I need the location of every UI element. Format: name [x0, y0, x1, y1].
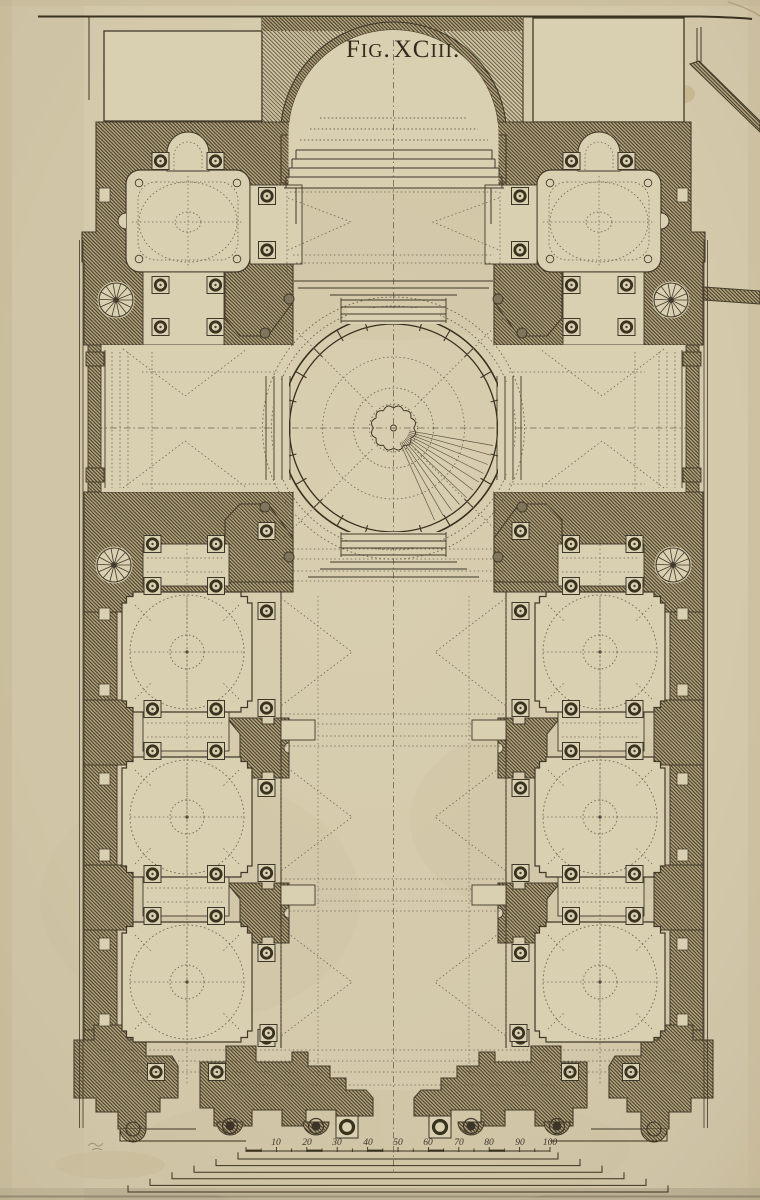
svg-text:80: 80	[484, 1138, 494, 1148]
svg-text:20: 20	[302, 1138, 312, 1148]
svg-text:30: 30	[331, 1138, 342, 1148]
svg-text:90: 90	[515, 1138, 525, 1148]
svg-text:70: 70	[454, 1138, 464, 1148]
svg-text:60: 60	[423, 1138, 433, 1148]
svg-text:10: 10	[271, 1138, 281, 1148]
svg-text:50: 50	[393, 1138, 403, 1148]
svg-text:40: 40	[363, 1138, 373, 1148]
svg-text:100: 100	[543, 1138, 558, 1148]
svg-text:FIG.XCIII.: FIG.XCIII.	[346, 36, 460, 63]
